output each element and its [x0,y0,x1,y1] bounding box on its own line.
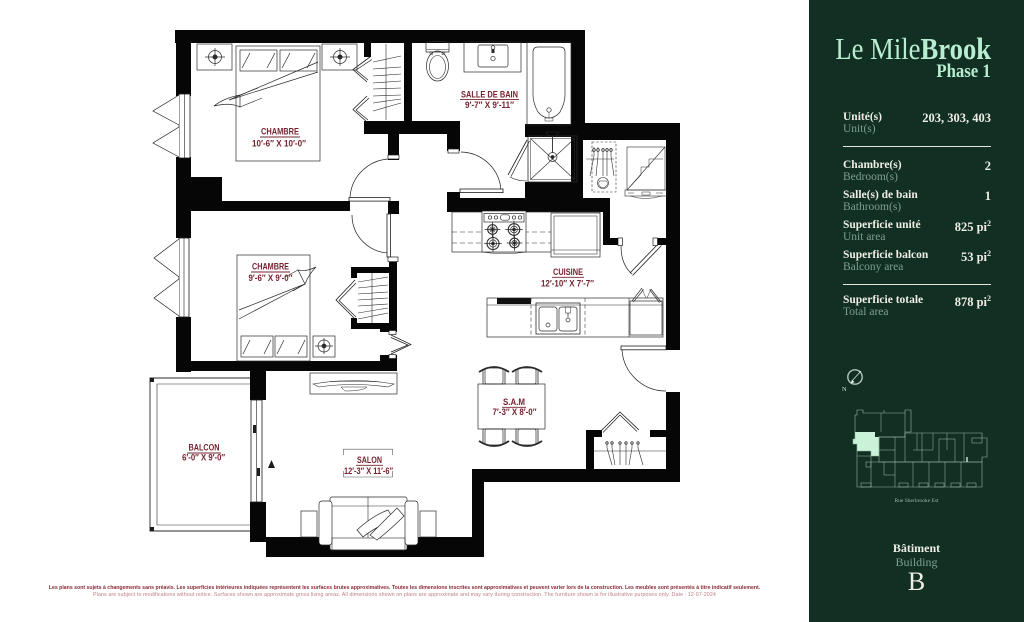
svg-text:12′-3″ X 11′-6″: 12′-3″ X 11′-6″ [344,466,394,476]
svg-text:SALON: SALON [357,455,382,465]
svg-text:SALLE DE BAIN: SALLE DE BAIN [461,89,518,99]
svg-text:6′-0″ X 9′-0″: 6′-0″ X 9′-0″ [182,453,226,463]
svg-text:10′-6″ X 10′-0″: 10′-6″ X 10′-0″ [252,139,307,149]
svg-text:N: N [842,386,847,393]
svg-text:CUISINE: CUISINE [553,267,583,277]
svg-text:7′-3″ X 8′-0″: 7′-3″ X 8′-0″ [493,407,538,417]
svg-text:BALCON: BALCON [189,443,220,453]
svg-text:CHAMBRE: CHAMBRE [252,262,289,272]
svg-text:9′-7″ X 9′-11″: 9′-7″ X 9′-11″ [465,100,515,110]
svg-text:CHAMBRE: CHAMBRE [261,127,299,137]
svg-text:S.A.M: S.A.M [503,397,525,407]
svg-text:12′-10″ X 7′-7″: 12′-10″ X 7′-7″ [541,279,595,289]
svg-text:9′-6″ X 9′-0″: 9′-6″ X 9′-0″ [249,273,294,283]
